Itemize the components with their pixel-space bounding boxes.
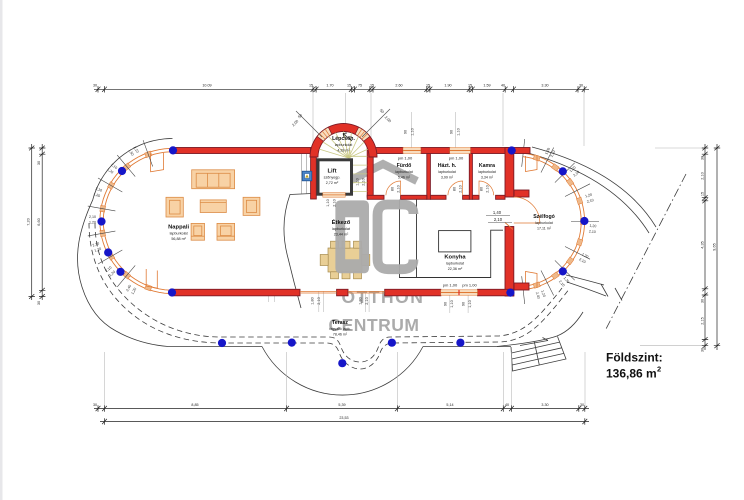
- svg-text:2,10: 2,10: [701, 172, 705, 179]
- svg-text:1,40: 1,40: [493, 210, 502, 215]
- svg-text:23,44 m²: 23,44 m²: [334, 233, 349, 237]
- svg-text:90: 90: [450, 130, 454, 134]
- svg-text:3.30: 3.30: [541, 84, 548, 88]
- svg-text:fagyálló lapb.: fagyálló lapb.: [329, 327, 350, 331]
- svg-text:30: 30: [93, 84, 97, 88]
- svg-text:22,36 m²: 22,36 m²: [448, 267, 463, 271]
- svg-text:15: 15: [468, 84, 472, 88]
- svg-text:Lift: Lift: [327, 169, 336, 175]
- svg-text:Házt. h.: Házt. h.: [438, 163, 457, 169]
- svg-text:2,10: 2,10: [486, 185, 490, 192]
- svg-text:80: 80: [480, 187, 484, 191]
- svg-text:Nappali: Nappali: [168, 225, 189, 231]
- svg-text:lapburkolat: lapburkolat: [478, 170, 496, 174]
- svg-text:1,80: 1,80: [311, 297, 315, 304]
- svg-text:1.70: 1.70: [326, 84, 333, 88]
- svg-text:2,10: 2,10: [365, 297, 369, 304]
- svg-text:2,15: 2,15: [701, 317, 705, 324]
- svg-text:1,20: 1,20: [589, 224, 596, 229]
- svg-text:1.90: 1.90: [444, 84, 451, 88]
- svg-text:Földszint:: Földszint:: [606, 351, 663, 365]
- svg-text:pm 1,00: pm 1,00: [462, 283, 477, 288]
- svg-text:2,10: 2,10: [589, 229, 596, 234]
- svg-text:17,11 m²: 17,11 m²: [537, 227, 552, 231]
- svg-text:pm 1,00: pm 1,00: [398, 156, 413, 161]
- svg-text:lapburkolat: lapburkolat: [395, 170, 413, 174]
- svg-text:Fürdő: Fürdő: [397, 163, 412, 169]
- svg-text:2,10: 2,10: [494, 217, 503, 222]
- svg-text:30: 30: [701, 348, 705, 352]
- svg-text:lapburkolat: lapburkolat: [332, 227, 350, 231]
- svg-text:1,10: 1,10: [326, 199, 330, 206]
- svg-text:Lépcsőh.: Lépcsőh.: [332, 136, 355, 142]
- svg-text:30: 30: [580, 403, 584, 407]
- svg-text:30: 30: [93, 403, 97, 407]
- svg-text:pm 1,00: pm 1,00: [443, 283, 458, 288]
- svg-text:1,20: 1,20: [89, 221, 96, 225]
- svg-text:80: 80: [453, 187, 457, 191]
- svg-text:lapburkolat: lapburkolat: [170, 232, 188, 236]
- svg-text:9,65: 9,65: [713, 243, 717, 250]
- svg-text:1.59: 1.59: [483, 84, 490, 88]
- svg-text:2,10: 2,10: [317, 297, 321, 304]
- svg-text:2,10: 2,10: [397, 185, 401, 192]
- svg-text:15: 15: [347, 84, 351, 88]
- svg-text:15: 15: [309, 84, 313, 88]
- svg-text:80: 80: [391, 187, 395, 191]
- svg-text:lapburkolat: lapburkolat: [438, 170, 456, 174]
- svg-text:23,53: 23,53: [339, 416, 348, 420]
- svg-text:1,10: 1,10: [450, 300, 454, 307]
- svg-text:40: 40: [505, 403, 509, 407]
- svg-text:1,10: 1,10: [457, 128, 461, 135]
- svg-text:136,86 m: 136,86 m: [606, 367, 657, 381]
- svg-text:7,20: 7,20: [27, 218, 31, 225]
- svg-text:Konyha: Konyha: [444, 255, 466, 261]
- svg-text:30: 30: [701, 156, 705, 160]
- svg-text:Szélfogó: Szélfogó: [533, 214, 555, 220]
- svg-text:15: 15: [370, 84, 374, 88]
- svg-text:56,88 m²: 56,88 m²: [171, 237, 186, 241]
- svg-text:15: 15: [701, 192, 705, 196]
- svg-text:lapburkolat: lapburkolat: [446, 262, 464, 266]
- svg-text:1,10: 1,10: [356, 178, 360, 185]
- svg-text:2,10: 2,10: [333, 199, 337, 206]
- svg-text:2,10: 2,10: [459, 185, 463, 192]
- svg-text:2: 2: [657, 365, 661, 374]
- svg-text:30: 30: [701, 299, 705, 303]
- svg-text:5,39: 5,39: [338, 403, 345, 407]
- svg-text:90: 90: [404, 130, 408, 134]
- svg-text:90: 90: [444, 302, 448, 306]
- svg-text:75: 75: [358, 84, 362, 88]
- svg-text:lapburkolat: lapburkolat: [535, 221, 553, 225]
- svg-text:6,60: 6,60: [37, 218, 41, 225]
- svg-text:30: 30: [37, 161, 41, 165]
- svg-text:30: 30: [579, 84, 583, 88]
- svg-text:10.09: 10.09: [202, 84, 211, 88]
- svg-text:5,14: 5,14: [446, 403, 453, 407]
- svg-text:1,10: 1,10: [468, 300, 472, 307]
- svg-text:3.30: 3.30: [541, 403, 548, 407]
- svg-text:szőnyegp.: szőnyegp.: [324, 176, 341, 180]
- svg-text:90: 90: [462, 302, 466, 306]
- svg-text:40: 40: [501, 84, 505, 88]
- svg-text:pm 1,00: pm 1,00: [449, 156, 464, 161]
- svg-text:30: 30: [37, 301, 41, 305]
- svg-text:8,85: 8,85: [191, 403, 198, 407]
- svg-text:2,72 m²: 2,72 m²: [326, 181, 339, 185]
- svg-text:Terasz: Terasz: [332, 320, 348, 326]
- svg-text:4,35: 4,35: [701, 241, 705, 248]
- svg-text:4,28 m²: 4,28 m²: [337, 149, 350, 153]
- svg-text:Étkező: Étkező: [332, 218, 351, 226]
- svg-text:78,46 m²: 78,46 m²: [333, 333, 348, 337]
- svg-text:5,46 m²: 5,46 m²: [398, 176, 411, 180]
- svg-text:2.60: 2.60: [395, 84, 402, 88]
- svg-text:1,80: 1,80: [359, 297, 363, 304]
- svg-text:3,99 m²: 3,99 m²: [441, 176, 454, 180]
- svg-text:Kamra: Kamra: [479, 163, 495, 169]
- svg-text:lapburkolat: lapburkolat: [335, 143, 353, 147]
- svg-text:2,10: 2,10: [362, 178, 366, 185]
- svg-text:15: 15: [426, 84, 430, 88]
- svg-text:3,34 m²: 3,34 m²: [481, 176, 494, 180]
- svg-text:1,10: 1,10: [411, 128, 415, 135]
- svg-text:2,10: 2,10: [89, 215, 96, 219]
